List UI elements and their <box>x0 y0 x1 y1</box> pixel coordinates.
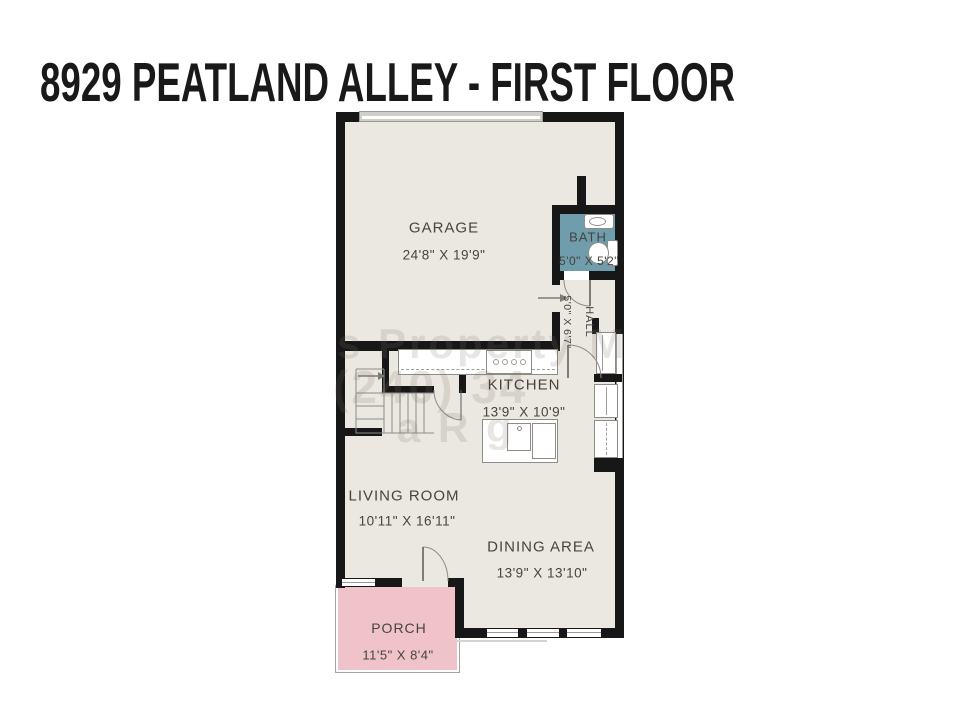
door-opening <box>564 271 589 280</box>
bath-sink <box>584 214 614 229</box>
wall <box>589 271 624 280</box>
hall-dims: 5'0" X 6'7" <box>561 295 573 348</box>
stove <box>486 350 532 374</box>
wall <box>552 312 560 345</box>
wall <box>594 374 622 382</box>
door-opening <box>434 386 459 393</box>
living-room-label: LIVING ROOM <box>348 488 459 505</box>
garage-dims: 24'8" X 19'9" <box>403 248 486 263</box>
kitchen-counter <box>398 349 558 375</box>
window <box>487 629 518 637</box>
wall <box>594 458 622 472</box>
page-title: 8929 PEATLAND ALLEY - FIRST FLOOR <box>40 50 735 114</box>
door-opening <box>402 578 448 587</box>
kitchen-label: KITCHEN <box>488 377 561 394</box>
porch-label: PORCH <box>371 620 427 636</box>
porch-dims: 11'5" X 8'4" <box>362 648 433 663</box>
dining-area-dims: 13'9" X 13'10" <box>497 566 588 581</box>
dining-area-label: DINING AREA <box>487 539 595 556</box>
wall <box>382 386 438 393</box>
living-room-dims: 10'11" X 16'11" <box>359 514 456 529</box>
sink-basin <box>589 217 606 226</box>
garage-door <box>359 111 543 122</box>
pantry-line <box>606 423 607 455</box>
step-line <box>455 640 547 642</box>
floor-plan-page: 8929 PEATLAND ALLEY - FIRST FLOOR <box>0 0 960 720</box>
dining-floor <box>455 580 616 628</box>
island-cabinet <box>532 423 556 459</box>
window <box>342 579 375 586</box>
unit-line <box>606 387 607 415</box>
bath-dims: 5'0" X 5'2" <box>559 254 619 268</box>
fridge-unit <box>594 384 618 418</box>
bath-label: BATH <box>569 230 607 245</box>
pantry-unit <box>594 420 618 458</box>
window <box>567 629 601 637</box>
sink-faucet <box>517 426 522 431</box>
wall <box>552 271 564 280</box>
garage-door-line <box>362 116 540 119</box>
wall <box>336 428 382 436</box>
wall <box>577 176 586 208</box>
window <box>527 629 559 637</box>
closet-line <box>602 335 603 371</box>
garage-label: GARAGE <box>409 220 479 237</box>
hall-closet <box>596 332 616 374</box>
hall-label: HALL <box>583 306 595 338</box>
stove-burners <box>491 354 527 370</box>
kitchen-dims: 13'9" X 10'9" <box>483 405 566 420</box>
wall <box>552 205 624 214</box>
